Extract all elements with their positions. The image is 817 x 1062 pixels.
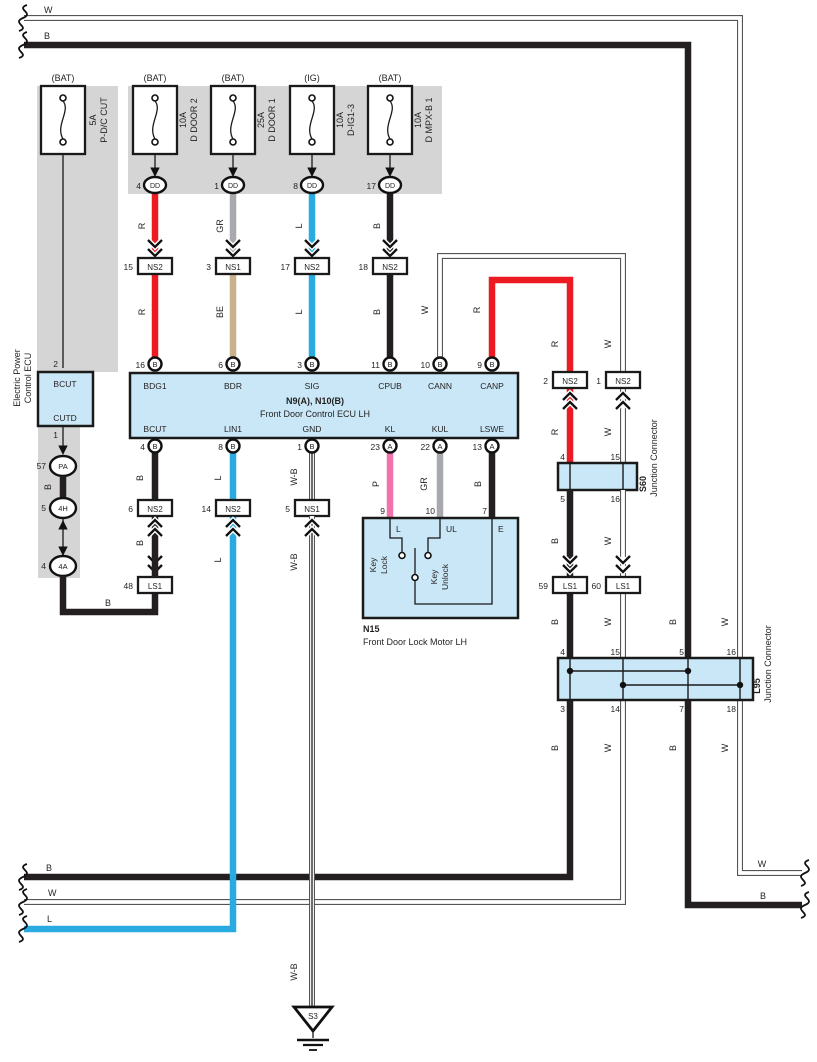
wire-color-label: W-B: [289, 468, 299, 485]
terminal-label: CUTD: [53, 413, 77, 423]
pin-number: 11: [371, 360, 380, 370]
wire-color-label: W: [44, 5, 53, 15]
wire-color-label: W-B: [289, 963, 299, 980]
wire-l95-18-white-casing: [740, 700, 802, 873]
fuse-feed-label: (BAT): [379, 73, 402, 83]
pin-number: 5: [285, 504, 290, 514]
wire-color-label: B: [46, 863, 52, 873]
wire-l95-18-white-core: [740, 700, 802, 873]
wire-l95-14-white-core: [24, 700, 623, 902]
pin-number: 15: [124, 262, 134, 272]
pin-number: 5: [41, 503, 46, 513]
wire-color-label: B: [760, 891, 766, 901]
wire-color-label: B: [135, 475, 145, 481]
terminal-label: GND: [303, 424, 322, 434]
wire-color-label: B: [43, 484, 53, 490]
wire-color-label: B: [372, 309, 382, 315]
component-name: Electric Power: [12, 349, 22, 407]
terminal-label: BCUT: [143, 424, 166, 434]
wire-color-label: R: [550, 428, 560, 435]
wire-color-label: L: [47, 914, 52, 924]
junction-name: Junction Connector: [763, 625, 773, 703]
terminal-label: CANP: [480, 381, 504, 391]
switch-label: Unlock: [440, 563, 450, 590]
terminal-label: L: [396, 524, 401, 534]
wire-color-label: R: [550, 340, 560, 347]
s60-to-l95-wires: B W LS1 59 LS1 60 B W: [539, 490, 640, 658]
pin-letter: A: [387, 442, 392, 451]
component-name: Front Door Control ECU LH: [260, 409, 370, 419]
fuse-name: D MPX-B 1: [424, 97, 434, 142]
pin-number: 1: [297, 442, 302, 452]
pin-number: 3: [206, 262, 211, 272]
wire-l95-3-black: [24, 700, 570, 877]
pin-number: 8: [218, 442, 223, 452]
pin-letter: B: [437, 360, 442, 369]
wire-color-label: B: [550, 538, 560, 544]
pin-letter: A: [489, 442, 494, 451]
pin-number: 3: [560, 704, 565, 714]
pin-number: 48: [124, 581, 134, 591]
fuse-rating: 5A: [88, 114, 98, 125]
connector-code: NS1: [304, 505, 320, 514]
pin-letter: B: [309, 442, 314, 451]
pin-number: 4: [136, 181, 141, 191]
junction-name: Junction Connector: [649, 419, 659, 497]
pin-number: 15: [611, 647, 621, 657]
wire-color-label: B: [135, 540, 145, 546]
wire-color-label: W: [48, 888, 57, 898]
wiring-diagram-page: W B B W L W B (BAT) 5A P-D/C CUT (BAT) 1…: [0, 0, 817, 1062]
terminal-label: E: [498, 524, 504, 534]
wire-color-label: R: [472, 306, 482, 313]
wire-color-label: R: [137, 308, 147, 315]
fuse-rating: 10A: [178, 112, 188, 128]
connector-code: 4A: [58, 562, 67, 571]
wire-color-label: L: [294, 309, 304, 314]
connector-code: DD: [150, 183, 160, 190]
component-name: Control ECU: [23, 353, 33, 404]
pin-letter: B: [309, 360, 314, 369]
pin-number: 4: [560, 452, 565, 462]
connector-code: NS2: [562, 377, 578, 386]
connector-code: NS2: [382, 263, 398, 272]
pin-number: 22: [421, 442, 431, 452]
pin-letter: B: [489, 360, 494, 369]
pin-letter: A: [437, 442, 442, 451]
fuse-name: D-IG1-3: [346, 104, 356, 136]
pin-number: 17: [367, 181, 377, 191]
ground-s3: S3: [294, 1007, 332, 1050]
component-code: N15: [363, 624, 380, 634]
pin-number: 14: [202, 504, 212, 514]
fuse-feed-label: (BAT): [222, 73, 245, 83]
pin-letter: B: [152, 360, 157, 369]
pin-number: 60: [592, 581, 602, 591]
pin-number: 15: [611, 452, 621, 462]
fuse-feed-label: (BAT): [144, 73, 167, 83]
component-code: N9(A), N10(B): [286, 396, 344, 406]
pin-number: 9: [380, 506, 385, 516]
wire-color-label: W: [758, 859, 767, 869]
pin-number: 7: [679, 704, 684, 714]
pin-number: 6: [218, 360, 223, 370]
junction-code: L95: [752, 678, 762, 694]
connector-code: LS1: [563, 582, 578, 591]
terminal-label: LIN1: [224, 424, 242, 434]
terminal-label: SIG: [305, 381, 320, 391]
front-door-control-ecu: N9(A), N10(B) Front Door Control ECU LH …: [130, 358, 518, 453]
front-door-lock-motor: L UL E Key Lock Key Unlock N15 Front Doo…: [363, 518, 518, 647]
pin-number: 17: [281, 262, 291, 272]
pin-number: 4: [140, 442, 145, 452]
wire-color-label: W: [603, 427, 613, 436]
pin-number: 10: [426, 506, 436, 516]
pin-number: 7: [482, 506, 487, 516]
terminal-label: KL: [385, 424, 396, 434]
connector-code: NS2: [304, 263, 320, 272]
fuse-rating: 25A: [256, 112, 266, 128]
wire-color-label: W: [603, 743, 613, 752]
wire-color-label: W: [420, 305, 430, 314]
wire-color-label: W: [720, 743, 730, 752]
fuse-feed-label: (BAT): [52, 73, 75, 83]
connector-code: LS1: [616, 582, 631, 591]
connector-code: NS2: [147, 263, 163, 272]
wire-color-label: B: [44, 31, 50, 41]
pin-letter: B: [387, 360, 392, 369]
pin-number: 16: [136, 360, 146, 370]
connector-code: NS2: [147, 505, 163, 514]
pin-number: 10: [421, 360, 431, 370]
connector-code: NS2: [225, 505, 241, 514]
wire-color-label: GR: [215, 219, 225, 233]
connector-code: NS1: [225, 263, 241, 272]
pin-number: 18: [727, 704, 737, 714]
pin-letter: B: [230, 360, 235, 369]
junction-code: S60: [638, 476, 648, 492]
pin-number: 57: [37, 461, 47, 471]
wire-color-label: BE: [215, 306, 225, 318]
pin-number: 16: [611, 494, 621, 504]
fuse-name: D DOOR 2: [189, 98, 199, 142]
wire-color-label: B: [550, 745, 560, 751]
pin-number: 59: [539, 581, 549, 591]
wire-color-label: B: [550, 619, 560, 625]
ground-code: S3: [308, 1012, 318, 1021]
switch-label: Lock: [379, 555, 389, 574]
fuse-rating: 10A: [413, 112, 423, 128]
terminal-label: BCUT: [53, 379, 76, 389]
wire-color-label: W-B: [289, 553, 299, 570]
fuse-name: P-D/C CUT: [99, 97, 109, 143]
pin-number: 9: [477, 360, 482, 370]
wire-color-label: W: [603, 536, 613, 545]
pin-number: 8: [293, 181, 298, 191]
wire-color-label: W: [603, 617, 613, 626]
terminal-label: LSWE: [480, 424, 504, 434]
connector-code: LS1: [148, 582, 163, 591]
terminal-label: CPUB: [378, 381, 402, 391]
pin-number: 3: [297, 360, 302, 370]
wire-color-label: W: [603, 339, 613, 348]
wire-color-label: B: [668, 745, 678, 751]
wire-color-label: L: [213, 557, 223, 562]
pin-number: 13: [473, 442, 483, 452]
connector-code: NS2: [615, 377, 631, 386]
pin-number: 14: [611, 704, 621, 714]
wire-color-label: B: [105, 598, 111, 608]
pin-number: 1: [214, 181, 219, 191]
fuse-rating: 10A: [335, 112, 345, 128]
component-name: Front Door Lock Motor LH: [363, 637, 467, 647]
wire-color-label: GR: [419, 477, 429, 491]
connector-code: DD: [228, 183, 238, 190]
wire-color-label: P: [371, 481, 381, 487]
wire-l95-14-white-casing: [24, 700, 623, 902]
terminal-label: CANN: [428, 381, 452, 391]
pin-number: 6: [128, 504, 133, 514]
pin-number: 2: [543, 376, 548, 386]
wire-color-label: B: [372, 223, 382, 229]
switch-label: Key: [429, 569, 439, 584]
pin-number: 4: [560, 647, 565, 657]
ns-connector-row: NS2 15 NS1 3 NS2 17 NS2 18: [124, 258, 407, 274]
terminal-label: BDR: [224, 381, 242, 391]
pin-number: 5: [679, 647, 684, 657]
pin-number: 1: [53, 430, 58, 440]
wiring-diagram: W B B W L W B (BAT) 5A P-D/C CUT (BAT) 1…: [0, 0, 817, 1062]
pin-number: 2: [53, 359, 58, 369]
pin-number: 18: [359, 262, 369, 272]
pin-number: 16: [727, 647, 737, 657]
pin-number: 5: [560, 494, 565, 504]
pin-number: 1: [596, 376, 601, 386]
pin-letter: B: [230, 442, 235, 451]
wire-color-label: R: [137, 222, 147, 229]
fuse-name: D DOOR 1: [267, 98, 277, 142]
wire-color-label: B: [473, 481, 483, 487]
connector-code: DD: [385, 183, 395, 190]
pin-number: 23: [371, 442, 381, 452]
connector-code: DD: [307, 183, 317, 190]
terminal-label: KUL: [432, 424, 449, 434]
terminal-label: UL: [446, 524, 457, 534]
wire-color-label: W: [720, 617, 730, 626]
pin-letter: B: [152, 442, 157, 451]
wire-color-label: L: [213, 475, 223, 480]
terminal-label: BDG1: [143, 381, 166, 391]
wire-color-label: L: [294, 223, 304, 228]
fuse-feed-label: (IG): [304, 73, 320, 83]
switch-label: Key: [368, 557, 378, 572]
connector-code: PA: [58, 462, 67, 471]
wire-color-label: B: [668, 619, 678, 625]
pin-number: 4: [41, 561, 46, 571]
connector-code: 4H: [58, 504, 68, 513]
